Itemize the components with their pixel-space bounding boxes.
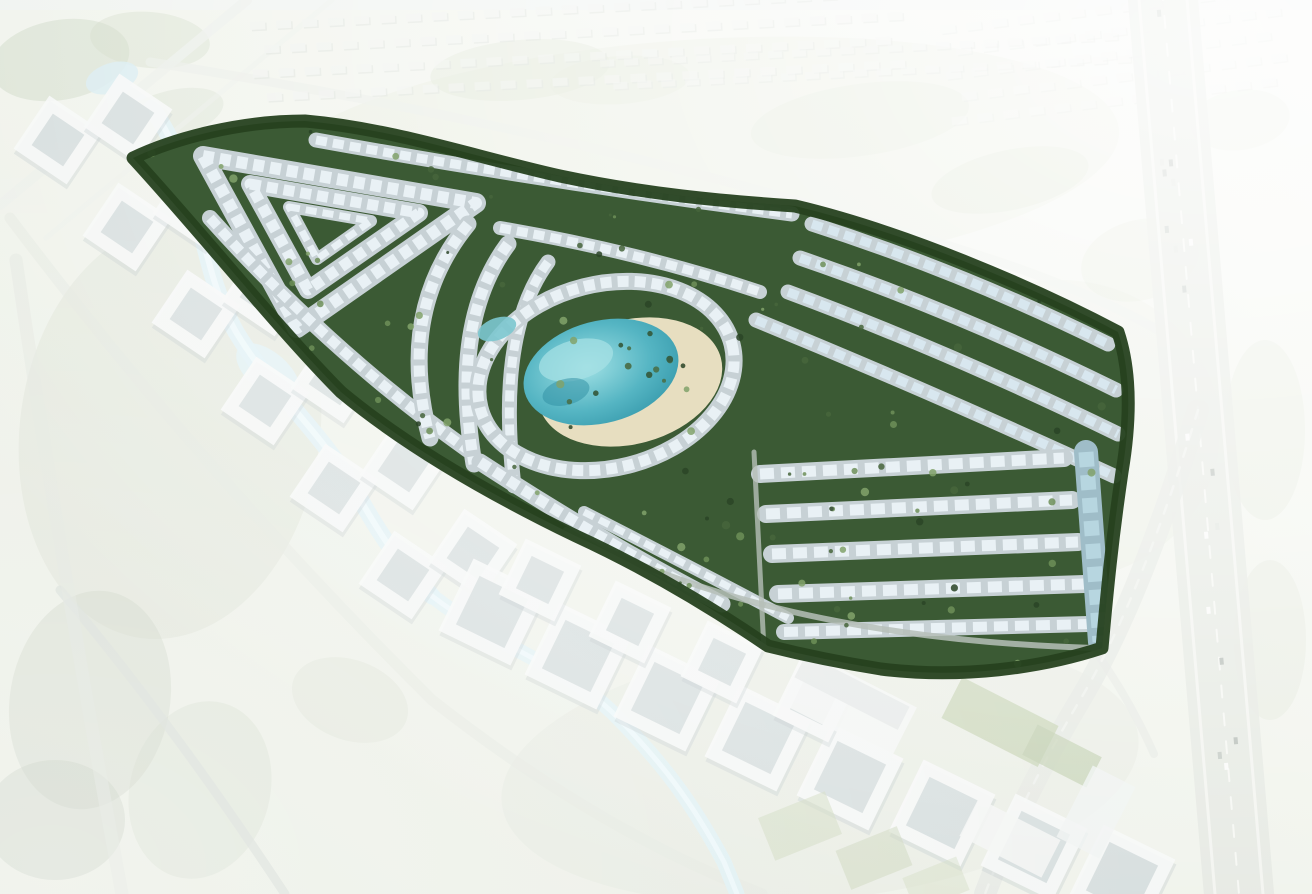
masterplan-aerial-render <box>0 0 1312 894</box>
masterplan-scene-svg <box>0 0 1312 894</box>
